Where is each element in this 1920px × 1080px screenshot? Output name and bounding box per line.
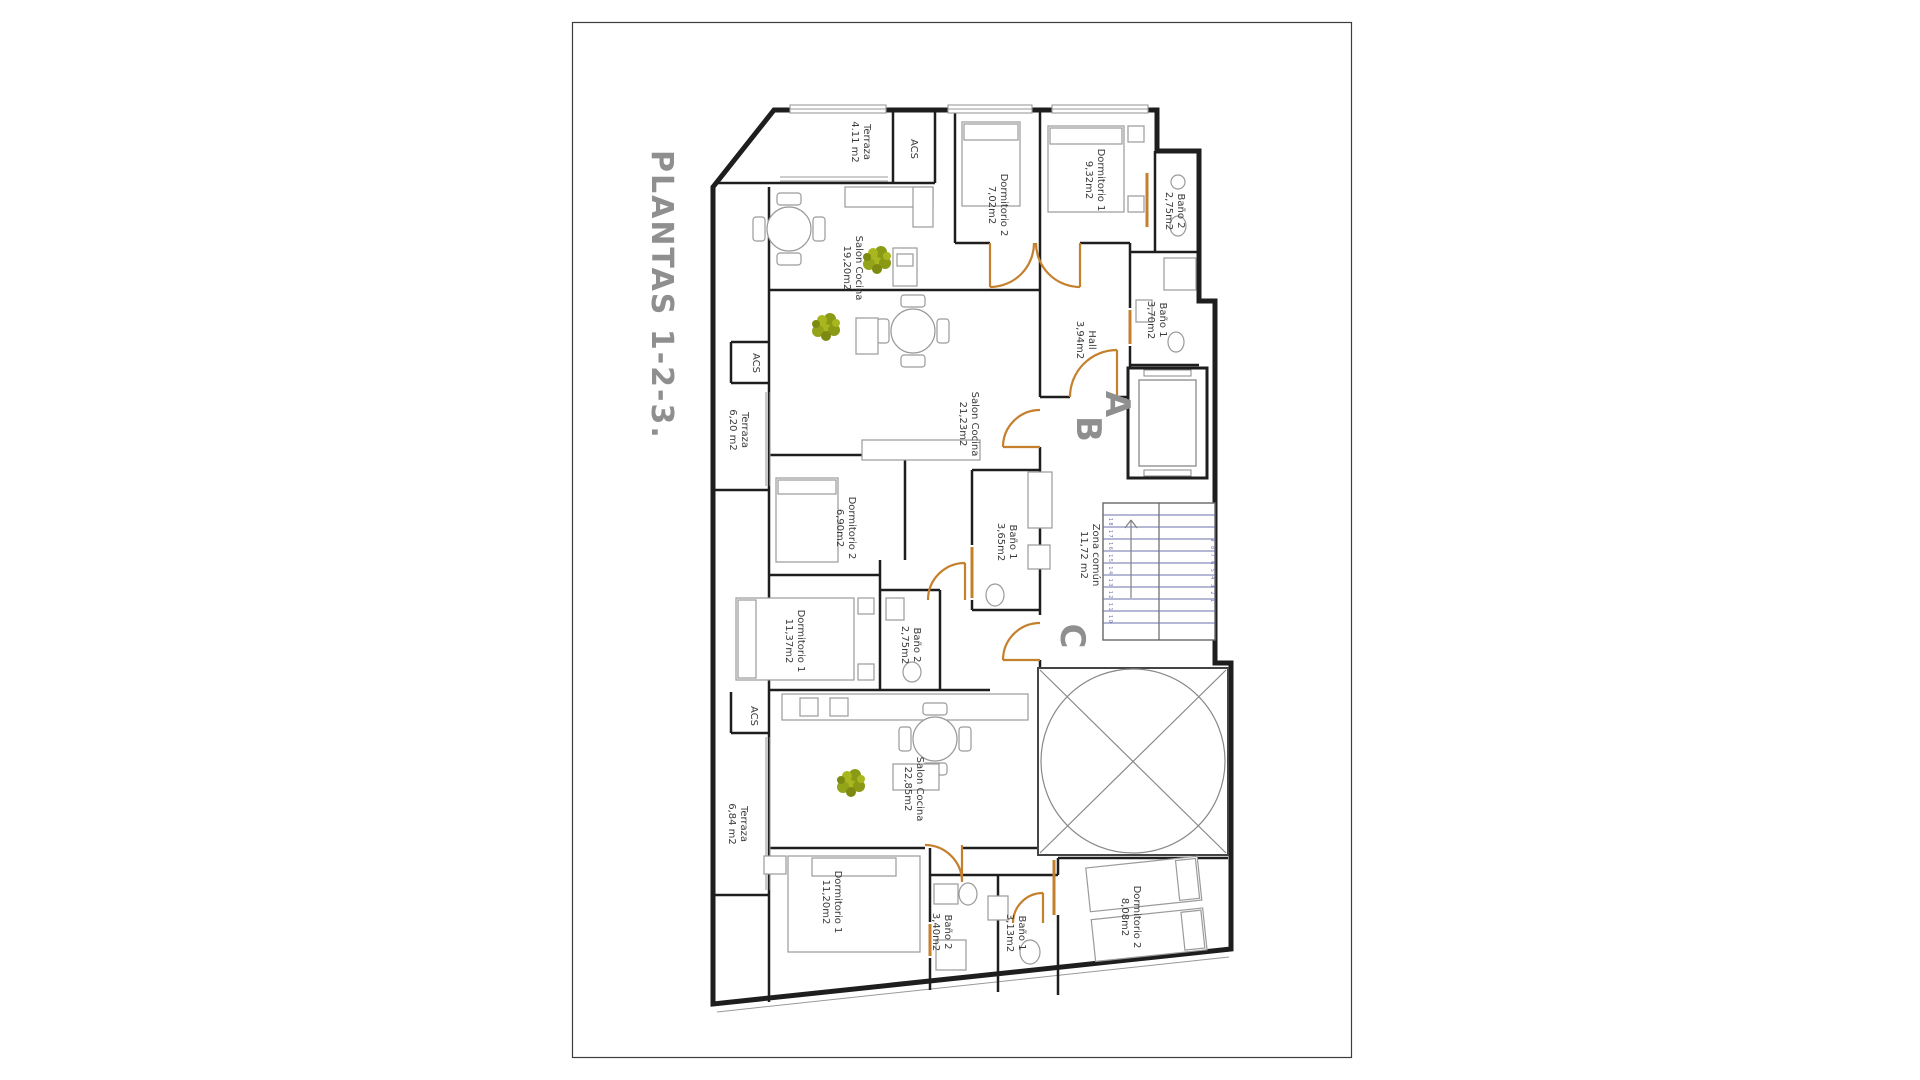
hob xyxy=(830,698,848,716)
label-terraza-mid-name: Terraza xyxy=(739,411,750,448)
label-bath2-b-name: Baño 2 xyxy=(911,628,922,663)
staircase: 18 17 16 15 14 13 12 11 10 9 8 7 6 5 4 3… xyxy=(1103,503,1215,640)
label-salon-b-name: Salon Cocina xyxy=(969,392,980,457)
label-dorm1-b-name: Dormitorio 1 xyxy=(795,610,806,673)
label-bath1-b-name: Baño 1 xyxy=(1007,525,1018,560)
label-acs-mid: ACS xyxy=(750,353,761,373)
label-salon-a-area: 19,20m2 xyxy=(841,246,852,291)
label-hall-name: Hall xyxy=(1086,330,1097,349)
label-dorm2-b-area: 6,90m2 xyxy=(834,509,845,547)
floor-plan-sheet: PLANTAS 1-2-3. 18 17 16 15 14 13 12 11 1… xyxy=(0,0,1920,1080)
elevator xyxy=(1128,368,1207,478)
label-dorm1-c-name: Dormitorio 1 xyxy=(832,871,843,934)
label-salon-c-name: Salon Cocina xyxy=(914,757,925,822)
pillow xyxy=(738,600,756,678)
label-bath1-b-area: 3,65m2 xyxy=(995,523,1006,561)
label-salon-b-area: 21,23m2 xyxy=(957,402,968,447)
label-bath2-c-area: 3,40m2 xyxy=(930,913,941,951)
label-salon-c-area: 22,85m2 xyxy=(902,767,913,812)
pillow xyxy=(778,480,836,494)
sofa-corner xyxy=(913,187,933,227)
label-hall-area: 3,94m2 xyxy=(1074,321,1085,359)
pillow xyxy=(1181,910,1205,950)
label-terraza-bottom-name: Terraza xyxy=(738,805,749,842)
label-dorm1-a-name: Dormitorio 1 xyxy=(1095,149,1106,212)
unit-letter-c: C xyxy=(1052,624,1092,649)
stair-step-numbers-right: 9 8 7 6 5 4 3 2 1 xyxy=(1209,538,1215,603)
shower xyxy=(1028,472,1052,528)
label-bath2-b-area: 2,75m2 xyxy=(899,626,910,664)
label-dorm1-c-area: 11,20m2 xyxy=(820,880,831,925)
toilet xyxy=(903,662,921,682)
label-bath1-c-area: 3,13m2 xyxy=(1004,914,1015,952)
nightstand xyxy=(858,598,874,614)
label-bath2-a-name: Baño 2 xyxy=(1175,194,1186,229)
shower xyxy=(1164,258,1196,290)
pillow xyxy=(964,124,1018,140)
toilet xyxy=(986,584,1004,606)
label-terraza-top-name: Terraza xyxy=(861,123,872,160)
pillow xyxy=(812,858,896,876)
label-bath1-a-area: 3,70m2 xyxy=(1145,301,1156,339)
label-dorm2-a-area: 7,02m2 xyxy=(986,186,997,224)
tv-unit xyxy=(856,318,878,354)
page-title: PLANTAS 1-2-3. xyxy=(644,150,679,440)
sink xyxy=(886,598,904,620)
label-bath1-c-name: Baño 1 xyxy=(1016,916,1027,951)
kitchen-counter xyxy=(782,694,1028,720)
label-terraza-mid-area: 6,20 m2 xyxy=(727,409,738,451)
label-terraza-top-area: 4.11 m2 xyxy=(849,121,860,163)
pillow xyxy=(1176,858,1200,900)
label-dorm2-c-area: 8,08m2 xyxy=(1119,898,1130,936)
label-bath1-a-name: Baño 1 xyxy=(1157,303,1168,338)
toilet xyxy=(1168,332,1184,352)
stair-step-numbers-left: 18 17 16 15 14 13 12 11 10 xyxy=(1107,518,1113,624)
label-acs-top: ACS xyxy=(908,139,919,159)
kitchen-sink xyxy=(800,698,818,716)
nightstand xyxy=(858,664,874,680)
sink xyxy=(934,884,958,904)
pillow xyxy=(1050,128,1122,144)
unit-letter-b: B xyxy=(1068,416,1108,442)
toilet xyxy=(959,883,977,905)
nightstand xyxy=(1128,196,1144,212)
label-zona-comun-name: Zona común xyxy=(1090,524,1102,587)
label-dorm2-a-name: Dormitorio 2 xyxy=(998,174,1009,237)
sink xyxy=(1171,175,1185,189)
nightstand xyxy=(1128,126,1144,142)
label-acs-bottom: ACS xyxy=(748,706,759,726)
label-terraza-bottom-area: 6,84 m2 xyxy=(726,803,737,845)
label-salon-a-name: Salon Cocina xyxy=(853,236,864,301)
label-dorm1-b-area: 11,37m2 xyxy=(783,619,794,664)
label-dorm2-b-name: Dormitorio 2 xyxy=(846,497,857,560)
unit-letter-a: A xyxy=(1097,391,1137,418)
label-zona-comun-area: 11,72 m2 xyxy=(1078,531,1089,579)
patio-lightwell xyxy=(1038,668,1228,855)
sink xyxy=(1028,545,1050,569)
nightstand xyxy=(764,856,786,874)
label-bath2-a-area: 2,75m2 xyxy=(1163,192,1174,230)
label-dorm1-a-area: 9,32m2 xyxy=(1083,161,1094,199)
label-bath2-c-name: Baño 2 xyxy=(942,915,953,950)
label-dorm2-c-name: Dormitorio 2 xyxy=(1131,886,1142,949)
